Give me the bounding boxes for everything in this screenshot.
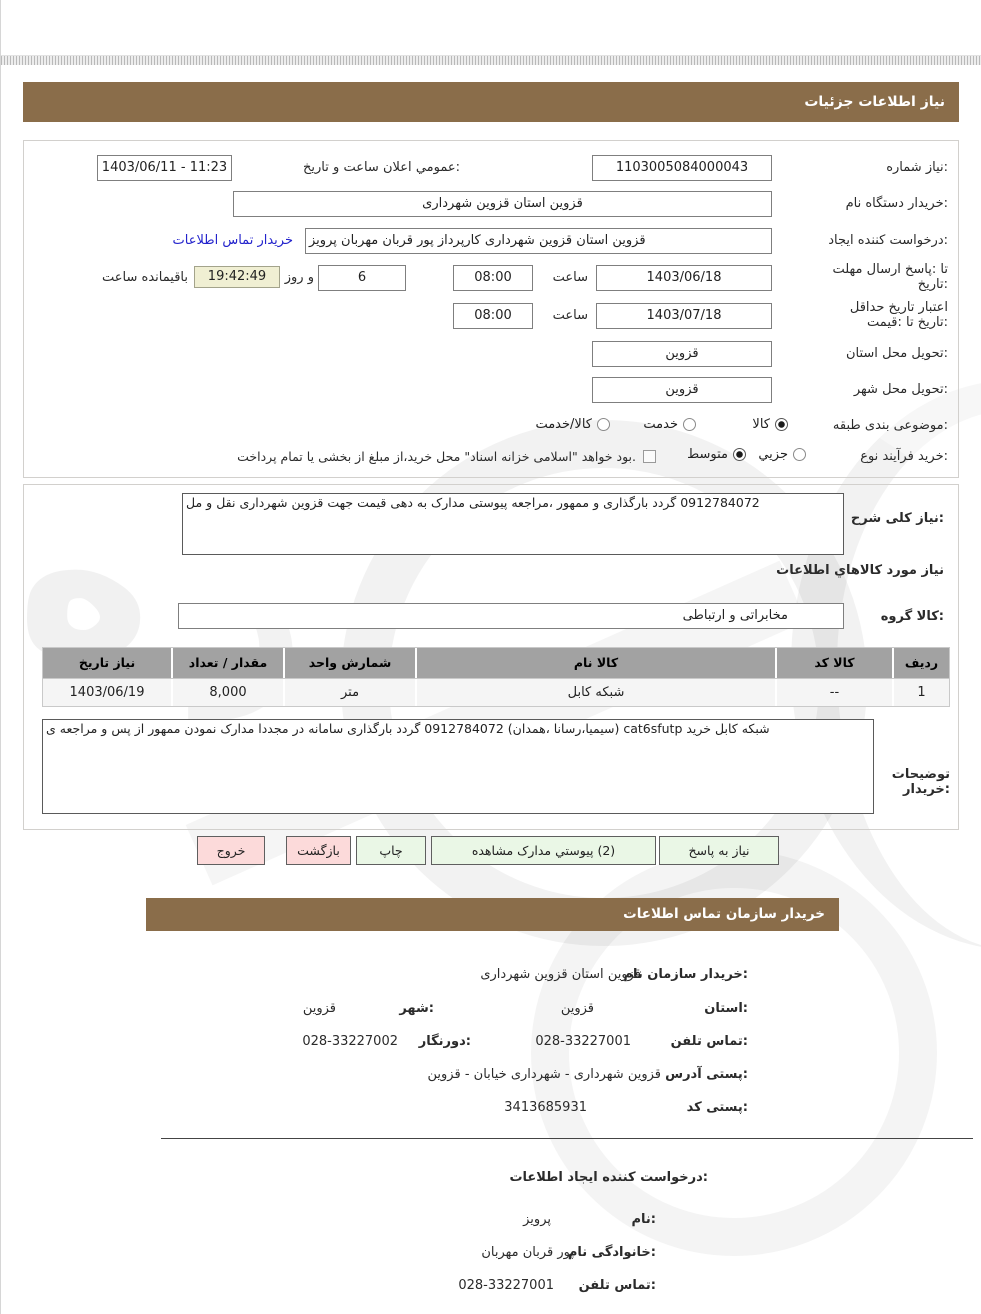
contact-org-label: نام سازمان خریدار: (623, 967, 748, 982)
goods-group-input[interactable]: ارتباطی و مخابراتی (178, 603, 844, 629)
creator-info-heading: اطلاعات ایجاد کننده درخواست: (509, 1170, 708, 1185)
contact-fax-label: دورنگار: (419, 1034, 471, 1049)
col-item-name: نام کالا (417, 648, 775, 678)
deadline-label: مهلت ارسال پاسخ: تا تاریخ: (830, 262, 948, 292)
respond-button[interactable]: پاسخ به نیاز (659, 836, 779, 865)
need-no-input[interactable]: 1103005084000043 (592, 155, 772, 181)
contact-province-value: قزوین (561, 1001, 594, 1016)
category-option-goods[interactable]: کالا (752, 417, 788, 432)
radio-icon[interactable] (733, 448, 746, 461)
contact-phone-value: 028-33227001 (535, 1034, 631, 1049)
validity-label: حداقل تاریخ اعتبار قیمت: تا تاریخ: (823, 300, 948, 330)
items-table-header: ردیف کد کالا نام کالا واحد شمارش تعداد /… (42, 647, 950, 679)
need-no-label: شماره نیاز: (886, 160, 948, 175)
days-label: روز و (285, 270, 314, 285)
creator-label: ایجاد کننده درخواست: (828, 233, 948, 248)
section-title-text: اطلاعات تماس سازمان خریدار (623, 906, 825, 922)
creator-phone-value: 028-33227001 (458, 1278, 554, 1293)
contact-org-value: شهرداری قزوین استان قزوین (480, 967, 641, 982)
province-input[interactable]: قزوین (592, 341, 772, 367)
option-label: جزیي (758, 447, 788, 462)
category-label: طبقه بندی موضوعی: (833, 418, 948, 433)
process-option-medium[interactable]: متوسط (687, 447, 746, 462)
section-title-need-details: جزئیات اطلاعات نیاز (23, 82, 959, 122)
deadline-date-input[interactable]: 1403/06/18 (596, 265, 772, 291)
cell-item-name: کابل شبکه (417, 679, 775, 706)
contact-city-label: شهر: (399, 1001, 434, 1016)
category-option-service[interactable]: خدمت (643, 417, 696, 432)
creator-input[interactable]: پرویز مهربان قربان پور کارپرداز شهرداری … (305, 228, 772, 254)
section-title-contact: اطلاعات تماس سازمان خریدار (146, 898, 839, 931)
col-unit: واحد شمارش (285, 648, 415, 678)
col-quantity: تعداد / مقدار (173, 648, 283, 678)
remaining-time-box: 19:42:49 (194, 266, 280, 288)
option-label: کالا (752, 417, 770, 432)
view-attachments-button[interactable]: مشاهده مدارک پیوستي (2) (431, 836, 656, 865)
need-items-box: مل و نقل شهرداری قزوین جهت قیمت دهی به م… (23, 484, 959, 830)
cell-need-date: 1403/06/19 (43, 679, 171, 706)
cell-quantity: 8,000 (173, 679, 283, 706)
col-item-code: کد کالا (777, 648, 892, 678)
exit-button[interactable]: خروج (197, 836, 265, 865)
validity-date-input[interactable]: 1403/07/18 (596, 303, 772, 329)
buyer-org-label: نام دستگاه خریدار: (846, 196, 948, 211)
validity-time-input[interactable]: 08:00 (453, 303, 533, 329)
radio-icon[interactable] (597, 418, 610, 431)
divider (161, 1138, 973, 1139)
contact-zip-label: کد پستی: (687, 1100, 748, 1115)
radio-icon[interactable] (793, 448, 806, 461)
need-description-textarea[interactable]: مل و نقل شهرداری قزوین جهت قیمت دهی به م… (182, 493, 844, 555)
creator-last-name-label: نام خانوادگی: (568, 1245, 656, 1260)
remaining-label: ساعت باقیمانده (102, 270, 188, 285)
option-label: کالا/خدمت (535, 417, 592, 432)
radio-icon[interactable] (683, 418, 696, 431)
contact-fax-value: 028-33227002 (302, 1034, 398, 1049)
option-label: خدمت (643, 417, 678, 432)
need-details-page: ه ر جزئیات اطلاعات نیاز شماره نیاز: 1103… (0, 0, 981, 1314)
goods-group-label: گروه کالا: (881, 609, 944, 624)
deadline-time-label: ساعت (553, 270, 588, 285)
buyer-org-input[interactable]: شهرداری قزوین استان قزوین (233, 191, 772, 217)
process-option-minor[interactable]: جزیي (758, 447, 806, 462)
deadline-days-input[interactable]: 6 (318, 265, 406, 291)
treasury-checkbox-label: پرداخت تمام یا بخشی از مبلغ خرید،از محل … (237, 449, 636, 464)
creator-last-name-value: مهربان قربان پور (481, 1245, 574, 1260)
back-button[interactable]: بازگشت (286, 836, 351, 865)
contact-address-label: آدرس پستی: (665, 1067, 748, 1082)
contact-phone-label: تلفن تماس: (671, 1034, 748, 1049)
buyer-notes-label: توضیحات خریدار: (878, 767, 950, 797)
page-top-separator (1, 55, 981, 65)
deadline-time-input[interactable]: 08:00 (453, 265, 533, 291)
col-row-no: ردیف (894, 648, 949, 678)
radio-icon[interactable] (775, 418, 788, 431)
creator-first-name-label: نام: (632, 1212, 657, 1227)
contact-zip-value: 3413685931 (504, 1100, 587, 1115)
cell-row-no: 1 (894, 679, 949, 706)
validity-time-label: ساعت (553, 308, 588, 323)
cell-unit: متر (285, 679, 415, 706)
col-need-date: تاریخ نیاز (43, 648, 171, 678)
process-label: نوع فرآیند خرید: (860, 449, 948, 464)
need-info-box: شماره نیاز: 1103005084000043 تاریخ و ساع… (23, 140, 959, 478)
buyer-contact-link[interactable]: اطلاعات تماس خریدار (173, 233, 293, 248)
announce-label: تاریخ و ساعت اعلان عمومي: (303, 160, 460, 175)
need-description-label: شرح کلی نیاز: (851, 511, 944, 526)
option-label: متوسط (687, 447, 728, 462)
contact-address-value: قزوین - خیابان شهرداری - شهرداری قزوین (427, 1067, 661, 1082)
contact-province-label: استان: (704, 1001, 748, 1016)
creator-phone-label: تلفن تماس: (579, 1278, 656, 1293)
print-button[interactable]: چاپ (356, 836, 426, 865)
city-input[interactable]: قزوین (592, 377, 772, 403)
category-option-goods-service[interactable]: کالا/خدمت (535, 417, 610, 432)
announce-input[interactable]: 1403/06/11 - 11:23 (97, 155, 232, 181)
cell-item-code: -- (777, 679, 892, 706)
buyer-notes-textarea[interactable]: ی مراجعه و پس از ممهور نمودن مدارک مجددا… (42, 719, 874, 814)
items-heading: اطلاعات کالاهاي مورد نیاز (776, 563, 944, 578)
treasury-checkbox[interactable] (643, 450, 656, 463)
contact-city-value: قزوین (303, 1001, 336, 1016)
city-label: شهر محل تحویل: (854, 382, 948, 397)
province-label: استان محل تحویل: (846, 346, 948, 361)
section-title-text: جزئیات اطلاعات نیاز (804, 94, 945, 110)
creator-first-name-value: پرویز (523, 1212, 551, 1227)
items-table-row: 1 -- کابل شبکه متر 8,000 1403/06/19 (42, 679, 950, 707)
